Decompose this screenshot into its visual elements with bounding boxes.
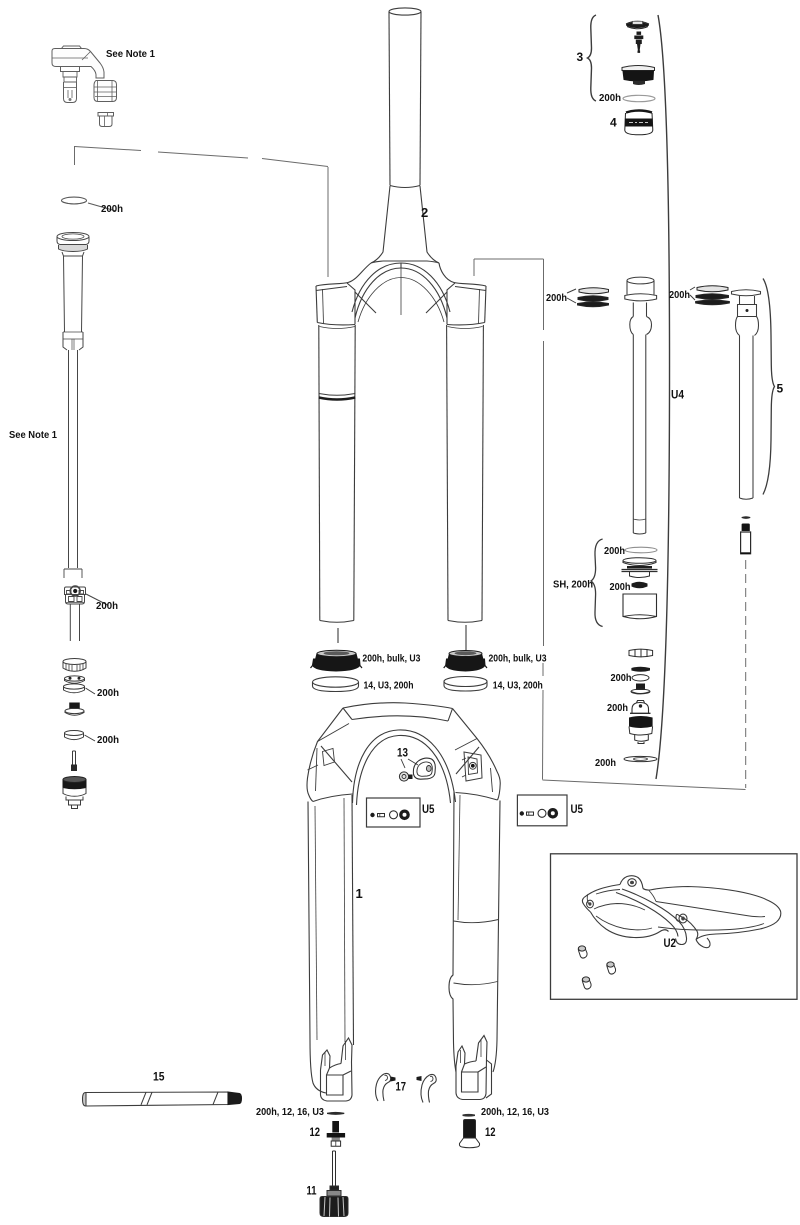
svg-text:11: 11 <box>307 1186 317 1198</box>
svg-text:U2: U2 <box>664 938 677 950</box>
svg-text:4: 4 <box>610 116 617 130</box>
svg-text:12: 12 <box>310 1127 321 1139</box>
svg-text:15: 15 <box>153 1072 165 1084</box>
svg-text:3: 3 <box>577 50 584 64</box>
svg-text:U5: U5 <box>571 804 584 816</box>
svg-text:200h: 200h <box>595 757 616 769</box>
svg-text:12: 12 <box>485 1127 496 1139</box>
svg-text:200h, 12, 16, U3: 200h, 12, 16, U3 <box>481 1106 549 1118</box>
svg-text:200h, bulk, U3: 200h, bulk, U3 <box>489 653 547 665</box>
svg-text:See Note 1: See Note 1 <box>106 48 155 60</box>
svg-text:SH, 200h: SH, 200h <box>553 579 593 591</box>
svg-text:200h: 200h <box>96 600 118 612</box>
svg-text:200h: 200h <box>611 672 632 684</box>
svg-text:200h: 200h <box>546 292 567 304</box>
svg-text:14, U3, 200h: 14, U3, 200h <box>493 680 543 692</box>
svg-text:2: 2 <box>421 205 428 220</box>
svg-text:5: 5 <box>777 382 784 396</box>
svg-text:200h: 200h <box>599 92 621 104</box>
svg-text:1: 1 <box>356 886 363 901</box>
svg-text:200h: 200h <box>101 203 123 215</box>
svg-text:200h: 200h <box>607 702 628 714</box>
svg-text:200h: 200h <box>610 581 631 593</box>
svg-text:200h, bulk, U3: 200h, bulk, U3 <box>362 653 420 665</box>
svg-text:200h: 200h <box>604 545 625 557</box>
svg-text:200h: 200h <box>669 289 690 301</box>
svg-text:13: 13 <box>397 748 408 760</box>
svg-text:See Note 1: See Note 1 <box>9 429 57 441</box>
svg-text:200h: 200h <box>97 734 119 746</box>
svg-text:17: 17 <box>396 1082 407 1094</box>
svg-text:U5: U5 <box>422 804 435 816</box>
svg-text:14, U3, 200h: 14, U3, 200h <box>364 680 414 692</box>
svg-text:200h, 12, 16, U3: 200h, 12, 16, U3 <box>256 1106 324 1118</box>
svg-text:U4: U4 <box>671 390 685 402</box>
svg-text:200h: 200h <box>97 687 119 699</box>
